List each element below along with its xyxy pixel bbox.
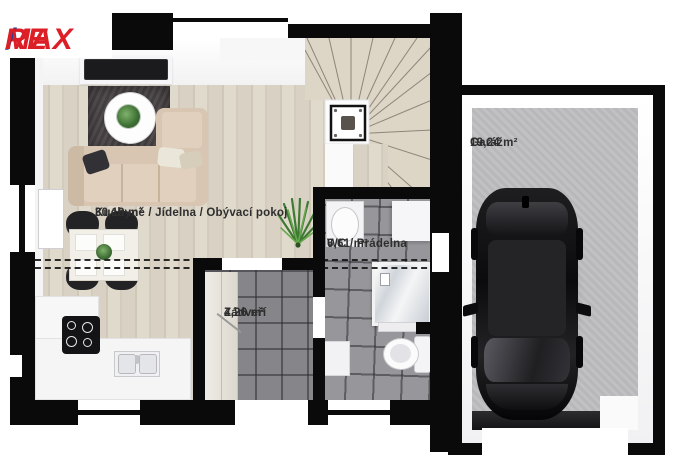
wc-cabinet-small [324, 341, 350, 376]
car-roof [488, 240, 566, 336]
window-left-small [10, 355, 22, 377]
sofa-armrest [68, 146, 84, 206]
burner [82, 322, 93, 333]
wall-stub [416, 322, 434, 334]
coffee-table-plant [117, 105, 140, 128]
car-mirror-left [463, 302, 478, 317]
wall-hall-left [193, 258, 205, 400]
car-windshield [484, 338, 570, 382]
washing-machine-panel [380, 273, 390, 286]
room-area: 19,24 m² [470, 136, 518, 150]
car-wheel [471, 228, 478, 260]
window-frame [19, 185, 25, 252]
window-frame [328, 410, 390, 415]
door-hall-to-wc [313, 297, 325, 338]
car-wheel [471, 336, 478, 368]
room-area: 4,26 m² [224, 306, 265, 320]
garage-door-opening [482, 428, 628, 465]
car-wheel [576, 336, 583, 368]
car-antenna [522, 196, 529, 208]
window-frame [173, 18, 288, 22]
room-area: 6,61 m² [327, 237, 368, 251]
floor-plan-scene: Kuchyně / Jídelna / Obývací pokoj 30,19 … [0, 0, 684, 465]
wardrobe-door-line [221, 272, 222, 400]
room-area: 30,19 m² [95, 206, 143, 220]
dining-table-plant [96, 244, 112, 260]
washing-machine [372, 262, 432, 326]
wall-face-top-2 [220, 38, 306, 60]
burner [83, 338, 92, 347]
door-living-to-hall [222, 258, 282, 270]
sofa-seam [158, 164, 160, 202]
burner [66, 336, 77, 347]
logo-max: MAX [5, 24, 73, 56]
wc-cabinet [392, 201, 432, 241]
burner [67, 321, 76, 330]
sink-basin [139, 354, 157, 374]
chimney [331, 106, 365, 140]
faucet [135, 355, 139, 364]
kitchen-sink [114, 351, 160, 377]
car-wheel [576, 228, 583, 260]
wall-wc-top [313, 187, 432, 199]
car-hood [486, 384, 568, 410]
kitchen-counter [35, 338, 191, 400]
staircase [305, 38, 432, 192]
wall-top [288, 24, 430, 38]
sink-basin [118, 354, 136, 374]
window-frame [78, 410, 140, 415]
toilet-seat [390, 344, 411, 363]
garage-corner-step [600, 396, 638, 430]
sofa-seam [121, 164, 123, 202]
cooktop [62, 316, 100, 354]
door-to-garage [432, 233, 449, 272]
sofa-cushion [162, 112, 202, 148]
car [476, 188, 578, 420]
wall-wc-left [313, 187, 325, 400]
entrance-door-opening [235, 400, 308, 425]
tv [84, 59, 168, 80]
window-sill [38, 189, 64, 249]
placemat [75, 234, 97, 251]
